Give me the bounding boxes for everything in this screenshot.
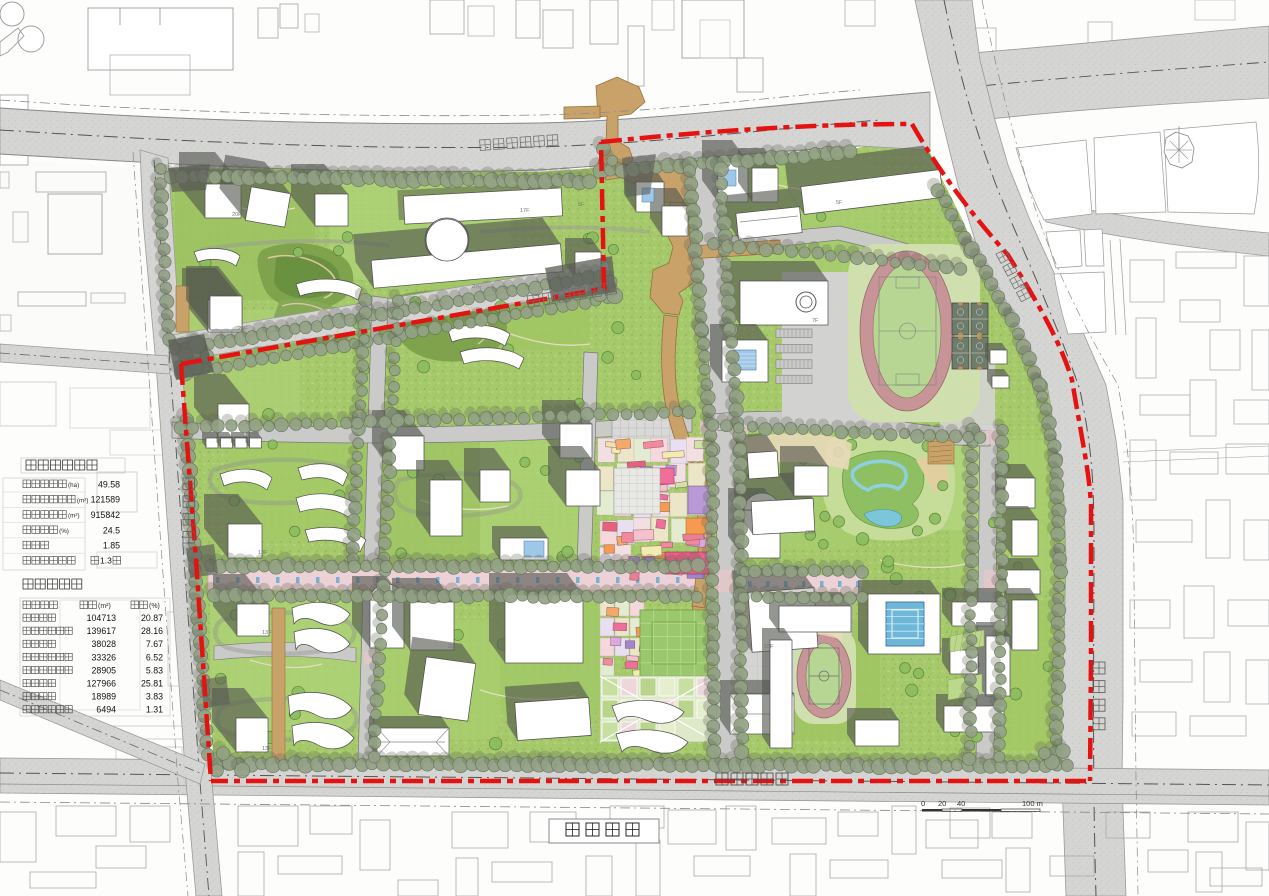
svg-text:6F: 6F <box>940 648 947 654</box>
svg-text:30F: 30F <box>806 530 816 536</box>
svg-text:5F: 5F <box>836 200 843 206</box>
svg-text:127966: 127966 <box>87 679 116 689</box>
svg-text:(m²): (m²) <box>98 603 111 610</box>
svg-text:(%): (%) <box>149 603 160 610</box>
svg-text:40: 40 <box>957 799 965 808</box>
svg-text:27F: 27F <box>472 284 482 290</box>
svg-text:1.3: 1.3 <box>100 556 112 566</box>
svg-text:13F: 13F <box>262 746 272 752</box>
svg-text:(m²): (m²) <box>68 513 80 520</box>
svg-text:139617: 139617 <box>87 626 116 636</box>
svg-text:104713: 104713 <box>87 613 116 623</box>
svg-text:25.81: 25.81 <box>141 679 163 689</box>
svg-text:38028: 38028 <box>92 639 117 649</box>
svg-text:6.52: 6.52 <box>146 652 163 662</box>
svg-text:121589: 121589 <box>91 495 120 505</box>
svg-text:20F: 20F <box>250 430 260 436</box>
svg-text:(m²): (m²) <box>77 497 89 504</box>
svg-text:49.58: 49.58 <box>98 479 120 489</box>
svg-text:0: 0 <box>921 799 925 808</box>
svg-text:5.83: 5.83 <box>146 665 163 675</box>
svg-text:6494: 6494 <box>96 705 116 715</box>
svg-text:20: 20 <box>938 799 946 808</box>
svg-text:7.67: 7.67 <box>146 639 163 649</box>
svg-text:1.85: 1.85 <box>103 541 120 551</box>
svg-text:5F: 5F <box>578 202 585 208</box>
svg-text:3.83: 3.83 <box>146 692 163 702</box>
svg-text:30F: 30F <box>448 644 458 650</box>
svg-text:28905: 28905 <box>92 665 117 675</box>
svg-text:24.5: 24.5 <box>103 525 120 535</box>
svg-text:100 m: 100 m <box>1022 799 1043 808</box>
svg-text:17F: 17F <box>520 208 530 214</box>
svg-text:18989: 18989 <box>92 692 117 702</box>
svg-text:26F: 26F <box>1020 284 1030 290</box>
svg-text:13F: 13F <box>262 630 272 636</box>
svg-text:7F: 7F <box>812 318 819 324</box>
svg-text:13F: 13F <box>258 550 268 556</box>
svg-text:(%): (%) <box>59 528 69 535</box>
svg-text:20.87: 20.87 <box>141 613 163 623</box>
svg-text:15F: 15F <box>764 644 774 650</box>
svg-text:1.31: 1.31 <box>146 705 163 715</box>
svg-text:20F: 20F <box>238 326 248 332</box>
svg-text:(ha): (ha) <box>68 482 79 489</box>
svg-text:20F: 20F <box>232 212 242 218</box>
svg-text:915842: 915842 <box>91 510 120 520</box>
svg-text:33326: 33326 <box>92 652 117 662</box>
svg-text:28.16: 28.16 <box>141 626 163 636</box>
